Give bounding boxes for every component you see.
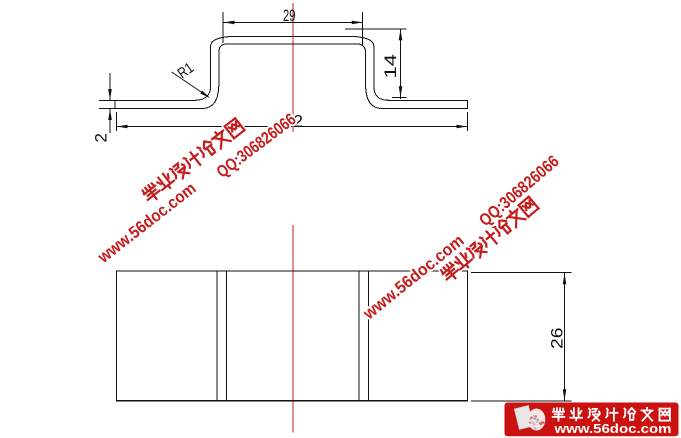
svg-text:29: 29 <box>283 6 296 25</box>
svg-text:R1: R1 <box>175 59 197 82</box>
svg-text:14: 14 <box>381 54 400 79</box>
svg-text:2: 2 <box>92 133 111 142</box>
svg-text:www.56doc.com: www.56doc.com <box>553 422 671 436</box>
svg-text:26: 26 <box>547 328 566 350</box>
svg-text:QQ:306826066: QQ:306826066 <box>213 110 300 182</box>
